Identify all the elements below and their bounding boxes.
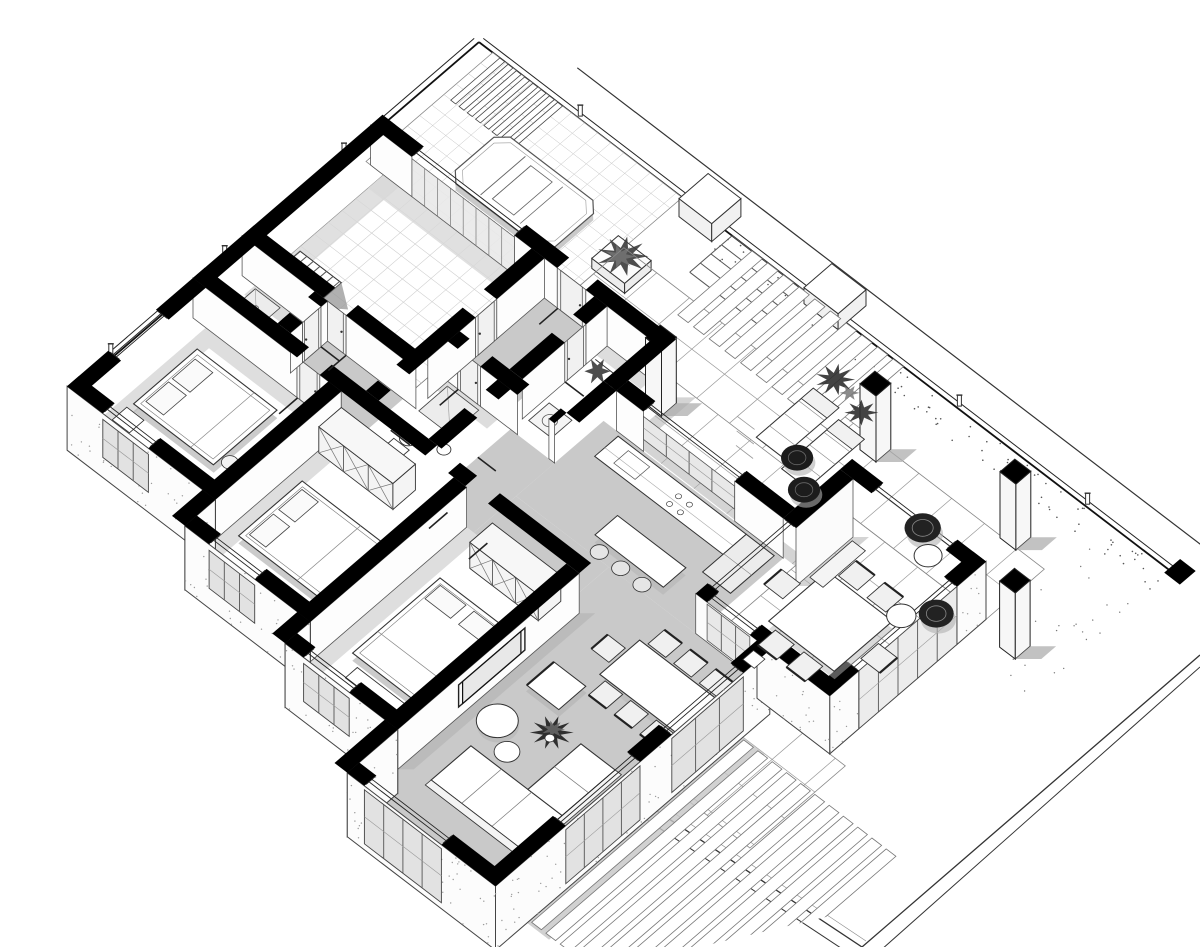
plant-pot: [545, 734, 555, 742]
fence-post: [1085, 493, 1091, 504]
bar-stool: [612, 561, 630, 576]
column: [1000, 459, 1031, 550]
terrace-plant: [844, 400, 878, 426]
round-table: [887, 604, 916, 628]
bar-stool: [590, 545, 608, 560]
paving-mark: [737, 431, 754, 444]
egg-chair: [905, 513, 941, 542]
pouf: [788, 477, 820, 503]
axonometric-floor-plan: [0, 0, 1200, 947]
sidewalk-se: [872, 667, 1200, 947]
wall-face: [549, 419, 555, 463]
bar-stool: [633, 577, 651, 592]
wall-face: [321, 301, 328, 347]
paving-mark: [737, 416, 754, 429]
sidewalk-se: [862, 655, 1200, 947]
fence-post: [956, 395, 962, 406]
axonometric-floor-plan-page: [0, 0, 1200, 947]
wicker-chair: [764, 569, 800, 599]
column: [1000, 568, 1031, 659]
paving-mark: [736, 445, 753, 458]
side-table: [494, 741, 520, 762]
round-table: [914, 545, 942, 567]
pouf: [781, 445, 813, 471]
fence-post: [577, 105, 583, 116]
garden-wall: [679, 174, 741, 242]
egg-chair: [919, 600, 954, 628]
coffee-table: [476, 704, 518, 738]
